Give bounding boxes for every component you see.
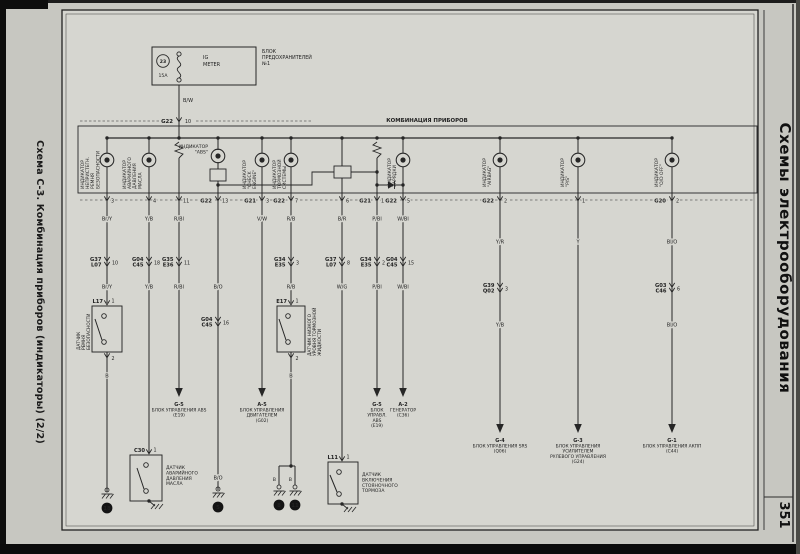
pin-number: 2 (112, 356, 115, 362)
ground-point-id: 11 (291, 503, 299, 509)
wire-color-label: P/Bl (372, 285, 382, 291)
wire-color-label: Y/R (495, 240, 505, 246)
pin-number: 5 (407, 199, 410, 205)
wire-color-label: R/B (287, 217, 296, 223)
wire-color-label: Bl/O (667, 240, 678, 246)
destination-label: ДВИГАТЕЛЕМ (247, 413, 278, 419)
svg-text:ИНДИКАТОР: ИНДИКАТОР (387, 158, 393, 187)
pin-number: 3 (505, 287, 508, 293)
connector-label: C45 (132, 263, 143, 269)
destination-label: ГЕНЕРАТОР (390, 407, 416, 413)
destination-label: (C44) (666, 449, 678, 455)
destination-label: ABS (373, 418, 382, 424)
destination-label: УСИЛИТЕЛЕМ (563, 449, 594, 455)
destination-label: УПРАВЛ. (367, 413, 386, 419)
svg-text:ДАВЛЕНИЯ: ДАВЛЕНИЯ (132, 163, 138, 189)
pin-number: 3 (266, 199, 269, 205)
component-label: ТОРМОЗА (361, 488, 385, 494)
destination-label: (Q06) (494, 449, 507, 455)
svg-text:"CHECK: "CHECK (247, 170, 253, 189)
connector-label: G22 (385, 199, 397, 205)
component-label: МАСЛА (166, 481, 183, 487)
wiring-diagram-scan: 2315AIGMETERБЛОКПРЕДОХРАНИТЕЛЕЙ№1B/WG221… (0, 0, 800, 554)
wire-color-label: Y/B (144, 285, 154, 291)
pin-number: 6 (346, 199, 349, 205)
pin-number: 1 (582, 199, 585, 205)
indicator-label: ИНДИКАТОР (178, 144, 208, 150)
destination-label: (E19) (371, 423, 383, 429)
connector-label: L07 (326, 263, 337, 269)
wire-color-label: B (273, 477, 276, 483)
svg-text:ИНДИКАТОР: ИНДИКАТОР (560, 158, 566, 187)
svg-text:БЕЗОПАСНОСТИ: БЕЗОПАСНОСТИ (86, 314, 92, 350)
right-caption: Схемы электрооборудования (776, 122, 794, 393)
wire-color-label: Br/Y (102, 217, 113, 223)
svg-text:УРОВНЯ ТОРМОЗНОЙ: УРОВНЯ ТОРМОЗНОЙ (311, 308, 318, 356)
scan-edge-left (0, 0, 6, 554)
svg-text:ИНДИКАТОР: ИНДИКАТОР (272, 160, 278, 189)
wire-color-label: B/O (213, 476, 222, 482)
destination-label: (G02) (256, 418, 269, 424)
wire-color-label: B/R (338, 217, 347, 223)
destination-label: (C36) (397, 413, 409, 419)
destination-label: (G24) (572, 459, 585, 465)
destination-label: БЛОК УПРАВЛЕНИЯ (556, 443, 601, 449)
pin-number: 16 (223, 321, 229, 327)
wire-color-label: Br/Y (102, 285, 113, 291)
wire-color-label: R/Bl (174, 285, 184, 291)
svg-text:ИНДИКАТОР: ИНДИКАТОР (122, 160, 128, 189)
wire-color-label: B (289, 477, 292, 483)
pin-number: 8 (347, 261, 350, 267)
connector-label: G22 (200, 199, 212, 205)
connector-label: E35 (275, 263, 286, 269)
pin-number: 1 (347, 455, 350, 461)
svg-text:ТОРМОЗНОЙ: ТОРМОЗНОЙ (276, 159, 283, 190)
fuse-box-label: №1 (262, 61, 270, 67)
wire-color-label: B/O (213, 285, 222, 291)
fuse-number: 23 (160, 59, 166, 65)
fuse-rating: 15A (159, 73, 169, 79)
wire-color-label: B/W (183, 98, 193, 104)
svg-text:НЕПРИСТЕГН.: НЕПРИСТЕГН. (85, 157, 91, 189)
pin-number: 15 (408, 261, 414, 267)
component-code: L17 (92, 299, 103, 305)
destination-label: A-2 (398, 402, 407, 408)
fuse-name: IG (203, 55, 208, 61)
wire-color-label: V/W (257, 217, 267, 223)
scan-edge-right (796, 0, 800, 554)
component-label: АВАРИЙНОГО (166, 469, 198, 476)
cluster-label: КОМБИНАЦИЯ ПРИБОРОВ (386, 118, 468, 124)
pin-number: 1 (296, 299, 299, 305)
destination-label: G-5 (372, 402, 382, 408)
svg-text:"O/D OFF": "O/D OFF" (659, 164, 665, 187)
indicator-label: "ABS" (195, 150, 208, 156)
component-label: ВКЛЮЧЕНИЯ (362, 477, 392, 483)
wire-color-label: B (105, 374, 109, 380)
pin-number: 11 (184, 261, 190, 267)
wire-color-label: W/Bl (397, 285, 408, 291)
svg-text:ИНДИКАТОР: ИНДИКАТОР (654, 158, 660, 187)
connector-label: G22 (273, 199, 285, 205)
wire-color-label: Bl/O (667, 323, 678, 329)
destination-label: БЛОК УПРАВЛЕНИЯ АКПП (643, 443, 702, 449)
pin-number: 10 (112, 261, 118, 267)
pin-number: 7 (295, 199, 298, 205)
component-label: ДАТЧИК (362, 472, 382, 478)
svg-text:ЖИДКОСТИ: ЖИДКОСТИ (317, 329, 323, 356)
destination-label: РУЛЕВОГО УПРАВЛЕНИЯ (550, 454, 606, 460)
wire-color-label: P/Bl (372, 217, 382, 223)
svg-text:ЗАРЯДКИ: ЗАРЯДКИ (392, 165, 398, 187)
pin-number: 13 (222, 199, 228, 205)
pin-number: 3 (296, 261, 299, 267)
svg-text:БЕЗОПАСНОСТИ: БЕЗОПАСНОСТИ (95, 151, 101, 189)
fuse-name: METER (203, 62, 221, 68)
component-label: ДАТЧИК (166, 465, 186, 471)
svg-text:СИСТЕМЫ: СИСТЕМЫ (282, 166, 288, 189)
svg-text:АВАРИЙНОГО: АВАРИЙНОГО (126, 157, 133, 189)
pin-number: 11 (183, 199, 189, 205)
pin-number: 10 (185, 119, 191, 125)
svg-text:"AIRBAG": "AIRBAG" (487, 166, 493, 187)
svg-text:ИНДИКАТОР: ИНДИКАТОР (80, 160, 86, 189)
pin-number: 2 (296, 356, 299, 362)
connector-label: G20 (654, 199, 666, 205)
pin-number: 18 (154, 261, 160, 267)
destination-label: G-5 (174, 402, 184, 408)
destination-label: G-3 (573, 438, 583, 444)
destination-label: G-1 (667, 438, 677, 444)
component-code: C30 (134, 448, 145, 454)
svg-text:РЕМНЯ: РЕМНЯ (90, 173, 96, 189)
svg-text:ИНДИКАТОР: ИНДИКАТОР (242, 160, 248, 189)
pin-number: 2 (504, 199, 507, 205)
ground-point-id: 8 (277, 503, 281, 509)
destination-label: БЛОК УПРАВЛЕНИЯ (240, 407, 285, 413)
pin-number: 3 (111, 199, 114, 205)
scan-corner-blot (0, 0, 48, 9)
ground-point-id: 18 (103, 506, 111, 512)
wire-color-label: R/Bl (174, 217, 184, 223)
scanned-manual-page: 2315AIGMETERБЛОКПРЕДОХРАНИТЕЛЕЙ№1B/WG221… (0, 0, 800, 554)
svg-text:"P/S": "P/S" (565, 176, 571, 187)
wire-color-label: B (289, 374, 293, 380)
diagram-sheet (62, 10, 758, 530)
connector-label: G21 (244, 199, 256, 205)
pin-number: 6 (677, 287, 680, 293)
left-caption: Схема С-3. Комбинация приборов (индикато… (34, 140, 45, 444)
connector-label: E36 (163, 263, 174, 269)
fuse-box-label: БЛОК (262, 49, 277, 55)
component-code: E17 (276, 299, 287, 305)
component-label: ДАВЛЕНИЯ (166, 476, 192, 482)
wire-color-label: W/Bl (397, 217, 408, 223)
wire-color-label: Y/B (144, 217, 154, 223)
pin-number: 4 (153, 199, 156, 205)
connector-label: G22 (482, 199, 494, 205)
pin-number: 2 (676, 199, 679, 205)
component-code: L11 (327, 455, 338, 461)
connector-label: E35 (361, 263, 372, 269)
connector-label: C45 (386, 263, 397, 269)
destination-label: БЛОК УПРАВЛЕНИЯ ABS (152, 407, 207, 413)
fuse-box-label: ПРЕДОХРАНИТЕЛЕЙ (262, 54, 312, 61)
ground-point-id: 5 (216, 505, 220, 511)
connector-label: G22 (161, 119, 173, 125)
svg-text:МАСЛА: МАСЛА (137, 172, 143, 189)
connector-label: C46 (655, 289, 666, 295)
pin-number: 1 (112, 299, 115, 305)
wire-color-label: R/B (287, 285, 296, 291)
component-label: СТОЯНОЧНОГО (362, 483, 398, 489)
svg-text:ИНДИКАТОР: ИНДИКАТОР (482, 158, 488, 187)
connector-label: Q02 (483, 289, 495, 295)
destination-label: БЛОК УПРАВЛЕНИЯ SRS (473, 443, 528, 449)
pin-number: 2 (382, 261, 385, 267)
wire-color-label: Y/B (495, 323, 505, 329)
connector-label: L07 (91, 263, 102, 269)
wire-color-label: W/G (337, 285, 348, 291)
destination-label: БЛОК (371, 407, 385, 413)
scan-edge-top (0, 0, 800, 3)
svg-text:ENGINE": ENGINE" (252, 170, 258, 189)
destination-label: G-4 (495, 438, 505, 444)
destination-label: (E19) (173, 413, 185, 419)
page-number: 351 (776, 501, 791, 528)
connector-label: G21 (359, 199, 371, 205)
pin-number: 1 (154, 448, 157, 454)
destination-label: A-5 (257, 402, 267, 408)
connector-label: C45 (201, 323, 212, 329)
scan-edge-bottom (0, 544, 800, 554)
